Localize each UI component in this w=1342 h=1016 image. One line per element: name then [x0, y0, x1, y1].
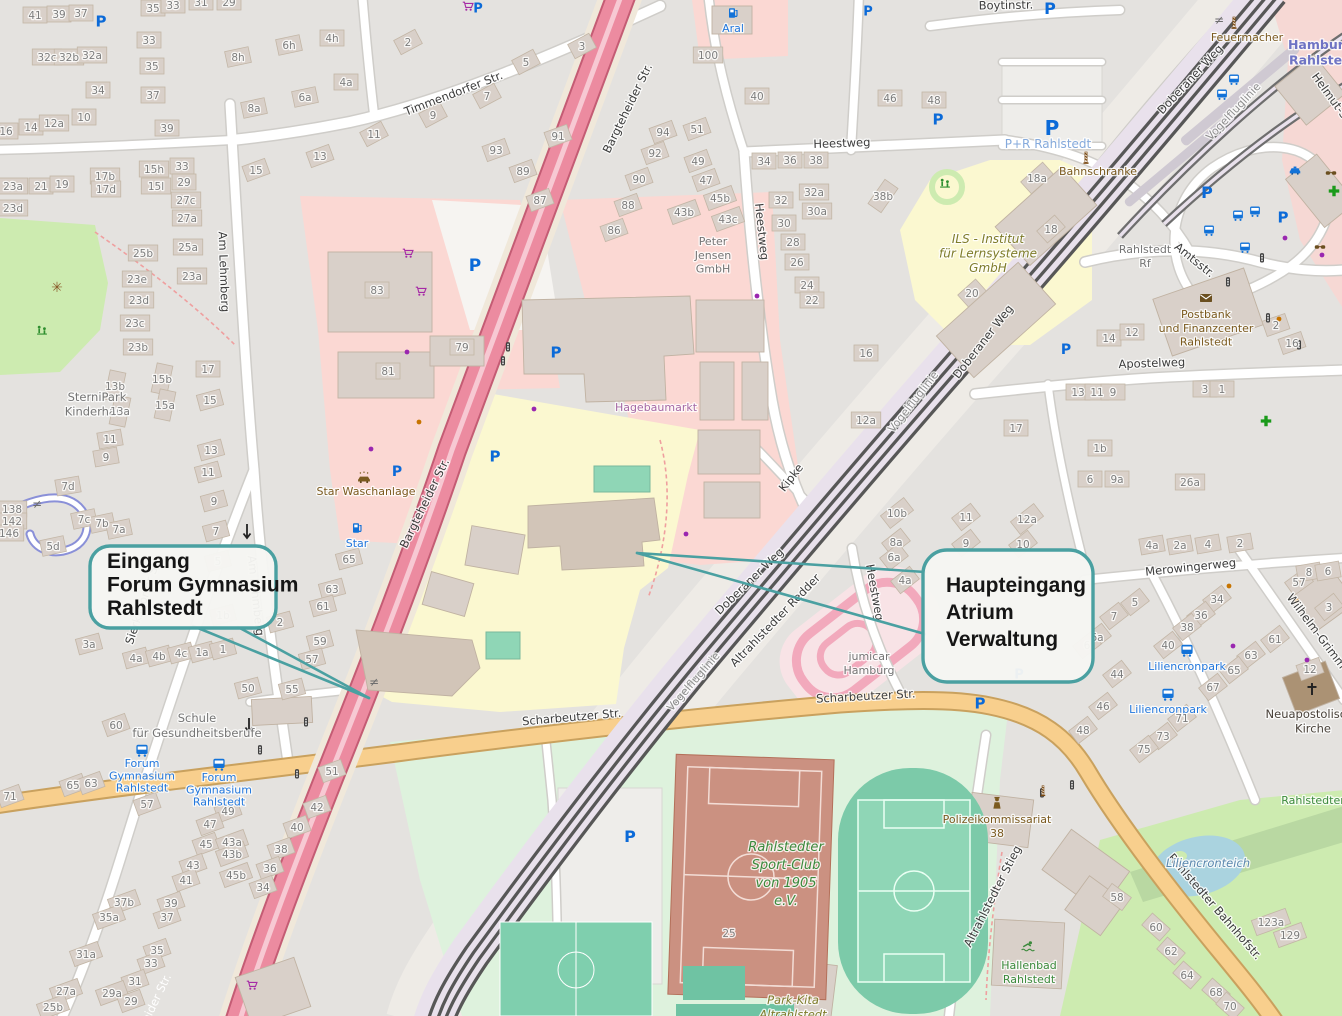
- campus-pitch: [594, 466, 650, 492]
- shop-dot-icon: [684, 532, 689, 537]
- building-peter-jensen: [696, 300, 764, 352]
- craft-dot-icon: [417, 420, 422, 425]
- traffic-light-icon: [304, 717, 308, 726]
- house-number: 6a: [887, 552, 900, 564]
- house-number: 16: [1285, 338, 1299, 350]
- house-number: 1b: [1093, 443, 1107, 455]
- poi-label: Postbank: [1181, 308, 1232, 321]
- house-number: 36: [263, 863, 277, 875]
- house-number: 41: [179, 875, 192, 887]
- house-number: 18: [1044, 224, 1057, 236]
- house-number: 33: [175, 161, 188, 173]
- house-number: 11: [201, 467, 214, 479]
- shop-dot-icon: [405, 350, 410, 355]
- parking-icon: P: [1278, 208, 1289, 226]
- poi-label: Rahlstedt: [1119, 243, 1172, 256]
- house-number: 13: [204, 445, 217, 457]
- house-number: 94: [656, 127, 670, 139]
- house-number: 37: [160, 912, 173, 924]
- house-number: 40: [1161, 640, 1174, 652]
- house-number: 39: [160, 123, 173, 135]
- house-number: 75: [1137, 744, 1150, 756]
- house-number: 12a: [44, 118, 64, 130]
- house-number: 129: [1280, 930, 1300, 942]
- house-number: 62: [1164, 946, 1177, 958]
- house-number: 55: [285, 684, 298, 696]
- house-number: 23d: [3, 203, 23, 215]
- house-number: 43a: [222, 837, 242, 849]
- house-number: 23e: [127, 274, 147, 286]
- house-number: 2: [405, 37, 412, 49]
- house-number: 6a: [298, 92, 311, 104]
- house-number: 13b: [105, 381, 125, 393]
- house-number: 23c: [125, 318, 144, 330]
- poi-label: P+R Rahlstedt: [1005, 137, 1092, 151]
- house-number: 16: [0, 126, 13, 138]
- house-number: 3: [1326, 602, 1333, 614]
- house-number: 67: [1206, 682, 1219, 694]
- house-number: 63: [84, 778, 97, 790]
- poi-label: Liliencronpark: [1129, 703, 1207, 716]
- house-number: 58: [1110, 892, 1123, 904]
- house-number: 12a: [1017, 514, 1037, 526]
- house-number: 61: [1268, 634, 1281, 646]
- house-number: 49: [691, 156, 704, 168]
- house-number: 12a: [856, 415, 876, 427]
- house-number: 43: [186, 860, 199, 872]
- house-number: 32: [774, 195, 787, 207]
- poi-label: 38: [990, 827, 1004, 840]
- house-number: 83: [370, 285, 383, 297]
- house-number: 2: [277, 617, 284, 629]
- house-number: 26: [790, 257, 804, 269]
- house-number: 34: [91, 85, 105, 97]
- house-number: 27a: [177, 213, 197, 225]
- street-label: Heestweg: [813, 135, 871, 151]
- traffic-light-icon: [501, 356, 505, 365]
- shop-dot-icon: [1283, 236, 1288, 241]
- poi-label: Forum: [202, 771, 237, 784]
- house-number: 7c: [78, 514, 91, 526]
- poi-label: Peter: [699, 235, 728, 248]
- level-crossing-icon: ≠: [1214, 13, 1224, 27]
- poi-label: für Lernsysteme: [939, 247, 1037, 261]
- poi-label: Kirche: [1295, 721, 1331, 735]
- house-number: 25: [722, 928, 735, 940]
- house-number: 45b: [710, 193, 730, 205]
- parking-icon: P: [1201, 183, 1213, 202]
- house-number: 1: [220, 644, 227, 656]
- poi-label: Jensen: [694, 249, 731, 262]
- house-number: 9a: [1110, 474, 1123, 486]
- shop-dot-icon: [755, 294, 760, 299]
- house-number: 57: [1292, 577, 1305, 589]
- house-number: 33: [142, 35, 155, 47]
- street-label: Boytinstr.: [979, 0, 1034, 12]
- house-number: 32b: [59, 52, 79, 64]
- callout-text-line: Haupteingang: [946, 574, 1086, 597]
- callout-text-line: Eingang: [107, 550, 190, 573]
- callout-text-line: Verwaltung: [946, 628, 1058, 651]
- house-number: 86: [607, 225, 621, 237]
- poi-label: Altrahlstedt: [758, 1007, 827, 1016]
- traffic-light-icon: [1260, 253, 1264, 262]
- house-number: 68: [1209, 987, 1222, 999]
- house-number: 30: [777, 218, 790, 230]
- parking-icon: P: [975, 694, 986, 712]
- traffic-light-icon: [295, 769, 299, 778]
- parking-icon: P: [1061, 342, 1071, 358]
- parking-icon: P: [490, 447, 501, 465]
- campus-pitch-2: [486, 632, 520, 659]
- house-number: 25b: [133, 248, 153, 260]
- house-number: 5d: [46, 541, 59, 553]
- poi-label: jumicar: [847, 650, 890, 663]
- callout-text-line: Forum Gymnasium: [107, 574, 298, 597]
- house-number: 39: [164, 898, 177, 910]
- shop-dot-icon: [369, 447, 374, 452]
- house-number: 10b: [887, 508, 907, 520]
- house-number: 15: [203, 395, 216, 407]
- poi-label: Gymnasium: [186, 783, 252, 796]
- house-number: 15l: [148, 181, 164, 193]
- house-number: 34: [1210, 594, 1224, 606]
- house-number: 15: [249, 165, 262, 177]
- house-number: 3: [1202, 384, 1209, 396]
- house-number: 43b: [674, 207, 694, 219]
- poi-label: Rahlstedt: [1289, 53, 1342, 68]
- house-number: 25a: [178, 242, 198, 254]
- house-number: 45: [199, 839, 212, 851]
- house-number: 44: [1110, 669, 1124, 681]
- house-number: 17d: [96, 184, 116, 196]
- parking-icon: P: [473, 2, 483, 17]
- house-number: 60: [1149, 922, 1162, 934]
- house-number: 9: [211, 496, 218, 508]
- house-number: 29: [222, 0, 235, 9]
- house-number: 71: [1175, 713, 1188, 725]
- poi-label: Forum: [125, 757, 160, 770]
- house-number: 34: [757, 156, 771, 168]
- house-number: 51: [325, 766, 338, 778]
- poi-label: Bahnschranke: [1059, 165, 1137, 178]
- house-number: 4h: [325, 33, 338, 45]
- house-number: 30a: [807, 206, 827, 218]
- traffic-light-icon: [1266, 313, 1270, 322]
- house-number: 50: [241, 683, 254, 695]
- house-number: 6h: [282, 40, 295, 52]
- traffic-light-icon: [1226, 277, 1230, 286]
- house-number: 51: [690, 124, 703, 136]
- callout-text-line: Rahlstedt: [107, 597, 203, 620]
- parking-icon: P: [392, 464, 402, 480]
- house-number: 8a: [889, 537, 902, 549]
- house-number: 2a: [1173, 540, 1186, 552]
- house-number: 5: [1132, 597, 1139, 609]
- house-number: 23a: [182, 271, 202, 283]
- shop-dot-icon: [1305, 658, 1310, 663]
- house-number: 43c: [718, 214, 737, 226]
- house-number: 36: [1194, 610, 1208, 622]
- house-number: 9: [1110, 387, 1117, 399]
- house-number: 81: [381, 366, 394, 378]
- house-number: 38b: [873, 191, 893, 203]
- recycling-icon: ✳: [51, 280, 63, 296]
- house-number: 29: [124, 996, 137, 1008]
- shop-dot-icon: [1320, 253, 1325, 258]
- house-number: 13: [1071, 387, 1084, 399]
- house-number: 4c: [175, 648, 188, 660]
- house-number: 12: [1125, 327, 1138, 339]
- craft-dot-icon: [1227, 584, 1232, 589]
- house-number: 123a: [1258, 917, 1284, 929]
- house-number: 14: [24, 122, 38, 134]
- poi-label: GmbH: [696, 263, 731, 276]
- parking-icon: P: [96, 12, 107, 30]
- house-number: 6: [1325, 566, 1332, 578]
- house-number: 65: [1227, 665, 1240, 677]
- poi-label: Rahlstedt: [1003, 973, 1056, 986]
- house-number: 27c: [176, 195, 195, 207]
- poi-label: Liliencronpark: [1148, 660, 1226, 673]
- house-number: 65: [66, 780, 79, 792]
- house-number: 24: [800, 280, 814, 292]
- traffic-light-icon: [506, 342, 510, 351]
- house-number: 16: [859, 348, 873, 360]
- poi-label: und Finanzcenter: [1159, 322, 1254, 335]
- callout-text-line: Atrium: [946, 601, 1014, 624]
- house-number: 46: [883, 93, 897, 105]
- poi-label: ILS - Institut: [952, 232, 1026, 246]
- house-number: 48: [927, 95, 940, 107]
- house-number: 36: [783, 155, 797, 167]
- poi-label: Schule: [178, 711, 216, 725]
- poi-label: Hamburg-: [1288, 37, 1342, 52]
- house-number: 17: [1009, 423, 1022, 435]
- house-number: 29a: [102, 988, 122, 1000]
- house-number: 34: [256, 882, 270, 894]
- house-number: 4a: [339, 77, 352, 89]
- house-number: 47: [203, 819, 216, 831]
- poi-label: Feuermacher: [1211, 31, 1284, 44]
- poi-label: Rahlstedt: [1180, 336, 1233, 349]
- house-number: 61: [316, 601, 329, 613]
- house-number: 90: [632, 174, 645, 186]
- house-number: 42: [310, 802, 323, 814]
- house-number: 7: [1111, 611, 1118, 623]
- mail-icon: [1200, 294, 1212, 302]
- house-number: 48: [1076, 725, 1089, 737]
- house-number: 46: [1096, 701, 1110, 713]
- house-number: 15b: [152, 374, 172, 386]
- stadium-pitch: [858, 800, 970, 982]
- house-number: 31: [194, 0, 207, 9]
- parking-icon: P: [624, 827, 636, 846]
- poi-label: von 1905: [755, 876, 816, 891]
- poi-label: Hallenbad: [1001, 959, 1057, 972]
- house-number: 43b: [222, 849, 242, 861]
- house-number: 35a: [99, 912, 119, 924]
- house-number: 89: [516, 166, 529, 178]
- house-number: 13: [313, 151, 326, 163]
- house-number: 32c: [37, 52, 56, 64]
- poi-label: Rahlstedt: [193, 796, 246, 809]
- house-number: 7a: [112, 524, 125, 536]
- house-number: 37b: [114, 897, 134, 909]
- house-number: 9: [430, 110, 437, 122]
- house-number: 41: [28, 10, 41, 22]
- house-number: 59: [313, 636, 326, 648]
- house-number: 4: [1205, 539, 1212, 551]
- house-number: 3: [579, 41, 586, 53]
- traffic-light-icon: [258, 745, 262, 754]
- house-number: 88: [621, 200, 634, 212]
- pitch-small: [683, 966, 745, 1000]
- building-schule: [251, 696, 312, 725]
- house-number: 15h: [144, 164, 164, 176]
- house-number: 35: [145, 61, 158, 73]
- house-number: 7b: [95, 518, 109, 530]
- house-number: 39: [52, 9, 65, 21]
- house-number: 4b: [152, 651, 166, 663]
- house-number: 23d: [129, 295, 149, 307]
- poi-label: Gymnasium: [109, 769, 175, 782]
- house-number: 8a: [247, 103, 260, 115]
- poi-label: Park-Kita: [767, 993, 819, 1007]
- house-number: 25b: [43, 1002, 63, 1014]
- poi-label: Aral: [722, 22, 744, 35]
- house-number: 1: [1219, 384, 1226, 396]
- house-number: 37: [146, 90, 159, 102]
- parking-icon: P: [863, 5, 873, 20]
- poi-label: Star: [346, 537, 369, 550]
- house-number: 2: [1237, 538, 1244, 550]
- house-number: 47: [699, 175, 712, 187]
- house-number: 73: [1156, 731, 1169, 743]
- house-number: 11: [367, 129, 380, 141]
- house-number: 8: [1306, 567, 1313, 579]
- house-number: 35: [150, 945, 163, 957]
- house-number: 19: [55, 179, 68, 191]
- level-crossing-icon: ≠: [32, 497, 42, 511]
- house-number: 57: [140, 799, 153, 811]
- house-number: 9: [103, 452, 110, 464]
- poi-label: Rahlstedter: [748, 840, 825, 855]
- house-number: 7d: [61, 481, 74, 493]
- parking-icon: P: [1044, 0, 1056, 18]
- house-number: 22: [805, 295, 818, 307]
- house-number: 60: [109, 720, 122, 732]
- house-number: 35: [146, 3, 159, 15]
- house-number: 63: [1244, 650, 1257, 662]
- house-number: 23b: [128, 342, 148, 354]
- house-number: 38: [809, 155, 822, 167]
- house-number: 27a: [56, 986, 76, 998]
- house-number: 4a: [129, 653, 142, 665]
- poi-label: Rahlstedter: [1281, 794, 1342, 807]
- shop-dot-icon: [532, 407, 537, 412]
- house-number: 8h: [231, 52, 244, 64]
- parking-icon: P: [469, 256, 481, 276]
- poi-label: GmbH: [969, 261, 1007, 275]
- pitch-south: [500, 922, 652, 1016]
- house-number: 100: [698, 50, 718, 62]
- house-number: 32a: [804, 187, 824, 199]
- house-number: 28: [786, 237, 799, 249]
- poi-label: Sport-Club: [752, 858, 821, 873]
- house-number: 7: [484, 91, 491, 103]
- poi-label: Rahlstedt: [116, 782, 169, 795]
- house-number: 38: [1180, 622, 1193, 634]
- house-number: 37: [74, 8, 87, 20]
- house-number: 11: [959, 512, 972, 524]
- parking-icon: P: [933, 110, 944, 128]
- house-number: 12: [1303, 664, 1316, 676]
- house-number: 49: [221, 806, 234, 818]
- poi-label: Star Waschanlage: [317, 485, 416, 498]
- house-number: 5: [523, 57, 530, 69]
- house-number: 1a: [195, 647, 208, 659]
- house-number: 10: [77, 112, 90, 124]
- house-number: 6: [1087, 474, 1094, 486]
- house-number: 146: [0, 528, 19, 540]
- house-number: 33: [166, 0, 179, 12]
- poi-label: Neuapostolische: [1266, 707, 1342, 721]
- map-viewport[interactable]: PPPPPPPPPPPPPPPP≠≠≠✳ Timmendorfer Str.Ba…: [0, 0, 1342, 1016]
- house-number: 17b: [95, 171, 115, 183]
- poi-label: Polizeikommissariat: [943, 813, 1052, 826]
- house-number: 79: [455, 342, 468, 354]
- house-number: 92: [648, 148, 661, 160]
- house-number: 2: [1273, 320, 1280, 332]
- house-number: 18a: [1027, 173, 1047, 185]
- house-number: 7: [213, 526, 220, 538]
- house-number: 45b: [226, 870, 246, 882]
- house-number: 38: [274, 844, 287, 856]
- house-number: 15a: [155, 400, 175, 412]
- house-number: 20: [965, 288, 978, 300]
- house-number: 4a: [898, 575, 911, 587]
- house-number: 65: [342, 554, 355, 566]
- house-number: 70: [1223, 1001, 1236, 1013]
- house-number: 32a: [82, 50, 102, 62]
- street-label: Apostelweg: [1118, 355, 1185, 371]
- house-number: 13a: [110, 406, 130, 418]
- house-number: 142: [2, 516, 22, 528]
- house-number: 40: [290, 822, 303, 834]
- house-number: 9: [963, 538, 970, 550]
- house-number: 138: [2, 504, 22, 516]
- house-number: 93: [489, 145, 502, 157]
- poi-label: Hamburg: [844, 664, 895, 677]
- house-number: 21: [34, 181, 47, 193]
- house-number: 33: [144, 958, 157, 970]
- house-number: 63: [325, 584, 338, 596]
- house-number: 31a: [76, 949, 96, 961]
- poi-label: Hagebaumarkt: [615, 401, 698, 414]
- house-number: 91: [551, 131, 564, 143]
- house-number: 11: [1090, 387, 1103, 399]
- level-crossing-icon: ≠: [369, 675, 379, 689]
- parking-icon: P: [551, 343, 562, 361]
- poi-label: Liliencronteich: [1166, 856, 1250, 870]
- poi-label: Rf: [1139, 257, 1152, 270]
- shop-dot-icon: [1231, 644, 1236, 649]
- house-number: 26a: [1180, 477, 1200, 489]
- house-number: 14: [1102, 333, 1116, 345]
- house-number: 4a: [1145, 540, 1158, 552]
- traffic-light-icon: [1070, 780, 1074, 789]
